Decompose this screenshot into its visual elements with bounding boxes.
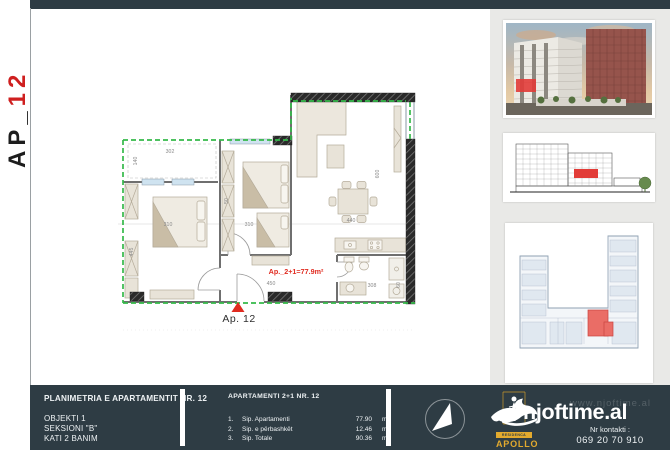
area-row: 1. Sip. Apartamenti 77.90 m² bbox=[228, 415, 390, 425]
svg-text:308: 308 bbox=[368, 283, 377, 289]
footer-divider-2 bbox=[386, 389, 391, 446]
row-label: Sip. Apartamenti bbox=[242, 415, 342, 425]
building-render-art bbox=[506, 23, 652, 115]
row-number: 3. bbox=[228, 434, 242, 444]
apartment-marker-triangle bbox=[232, 302, 245, 312]
svg-text:310: 310 bbox=[245, 222, 254, 228]
contact-block: Nr kontakti : 069 20 70 910 bbox=[550, 425, 670, 446]
area-row: 3. Sip. Totale 90.36 m² bbox=[228, 434, 390, 444]
row-number: 2. bbox=[228, 425, 242, 435]
area-row: 2. Sip. e përbashkët 12.46 m² bbox=[228, 425, 390, 435]
residence-name: APOLLO bbox=[496, 439, 532, 449]
watermark-text: www.njoftime.al bbox=[570, 398, 651, 409]
row-value: 12.46 bbox=[342, 425, 372, 435]
row-label: Sip. Totale bbox=[242, 434, 342, 444]
row-label: Sip. e përbashkët bbox=[242, 425, 342, 435]
floor-key-plan bbox=[505, 223, 653, 383]
svg-text:445: 445 bbox=[129, 248, 135, 257]
sidebar bbox=[487, 9, 670, 385]
footer-divider-1 bbox=[180, 389, 185, 446]
svg-text:450: 450 bbox=[267, 281, 276, 287]
footer-areas-block: APARTAMENTI 2+1 NR. 12 1. Sip. Apartamen… bbox=[228, 393, 390, 444]
apartment-table-title: APARTAMENTI 2+1 NR. 12 bbox=[228, 393, 390, 400]
building-render-image bbox=[503, 20, 655, 118]
footer-bar: PLANIMETRIA E APARTAMENTIT NR. 12 OBJEKT… bbox=[30, 385, 670, 450]
svg-text:60: 60 bbox=[396, 282, 402, 288]
svg-text:50: 50 bbox=[224, 198, 230, 204]
svg-text:440: 440 bbox=[347, 218, 356, 224]
row-number: 1. bbox=[228, 415, 242, 425]
svg-text:310: 310 bbox=[164, 222, 173, 228]
left-title-strip: AP_12 bbox=[0, 0, 30, 450]
top-bar bbox=[25, 0, 670, 9]
flyer-page: AP_12 bbox=[0, 0, 670, 450]
apartment-area-text: Ap._2+1=77.9m² bbox=[269, 267, 324, 276]
north-arrow-icon bbox=[422, 396, 468, 442]
row-value: 77.90 bbox=[342, 415, 372, 425]
furniture bbox=[125, 101, 406, 299]
svg-text:600: 600 bbox=[375, 170, 381, 179]
apartment-number-label: Ap. 12 bbox=[222, 313, 255, 325]
dove-icon bbox=[488, 397, 540, 427]
elevation-art bbox=[506, 136, 652, 199]
row-value: 90.36 bbox=[342, 434, 372, 444]
residence-label: RESIDENCA bbox=[496, 432, 532, 438]
svg-text:302: 302 bbox=[166, 149, 175, 155]
elevation-drawing bbox=[503, 133, 655, 202]
contact-phone: 069 20 70 910 bbox=[550, 435, 670, 446]
floor-plan-drawing: 302 140 310 445 50 310 440 600 450 308 6… bbox=[30, 9, 487, 385]
key-plan-art bbox=[508, 226, 650, 380]
contact-label: Nr kontakti : bbox=[550, 425, 670, 434]
apartment-code-vertical: AP_12 bbox=[4, 70, 32, 168]
svg-text:140: 140 bbox=[133, 157, 139, 166]
